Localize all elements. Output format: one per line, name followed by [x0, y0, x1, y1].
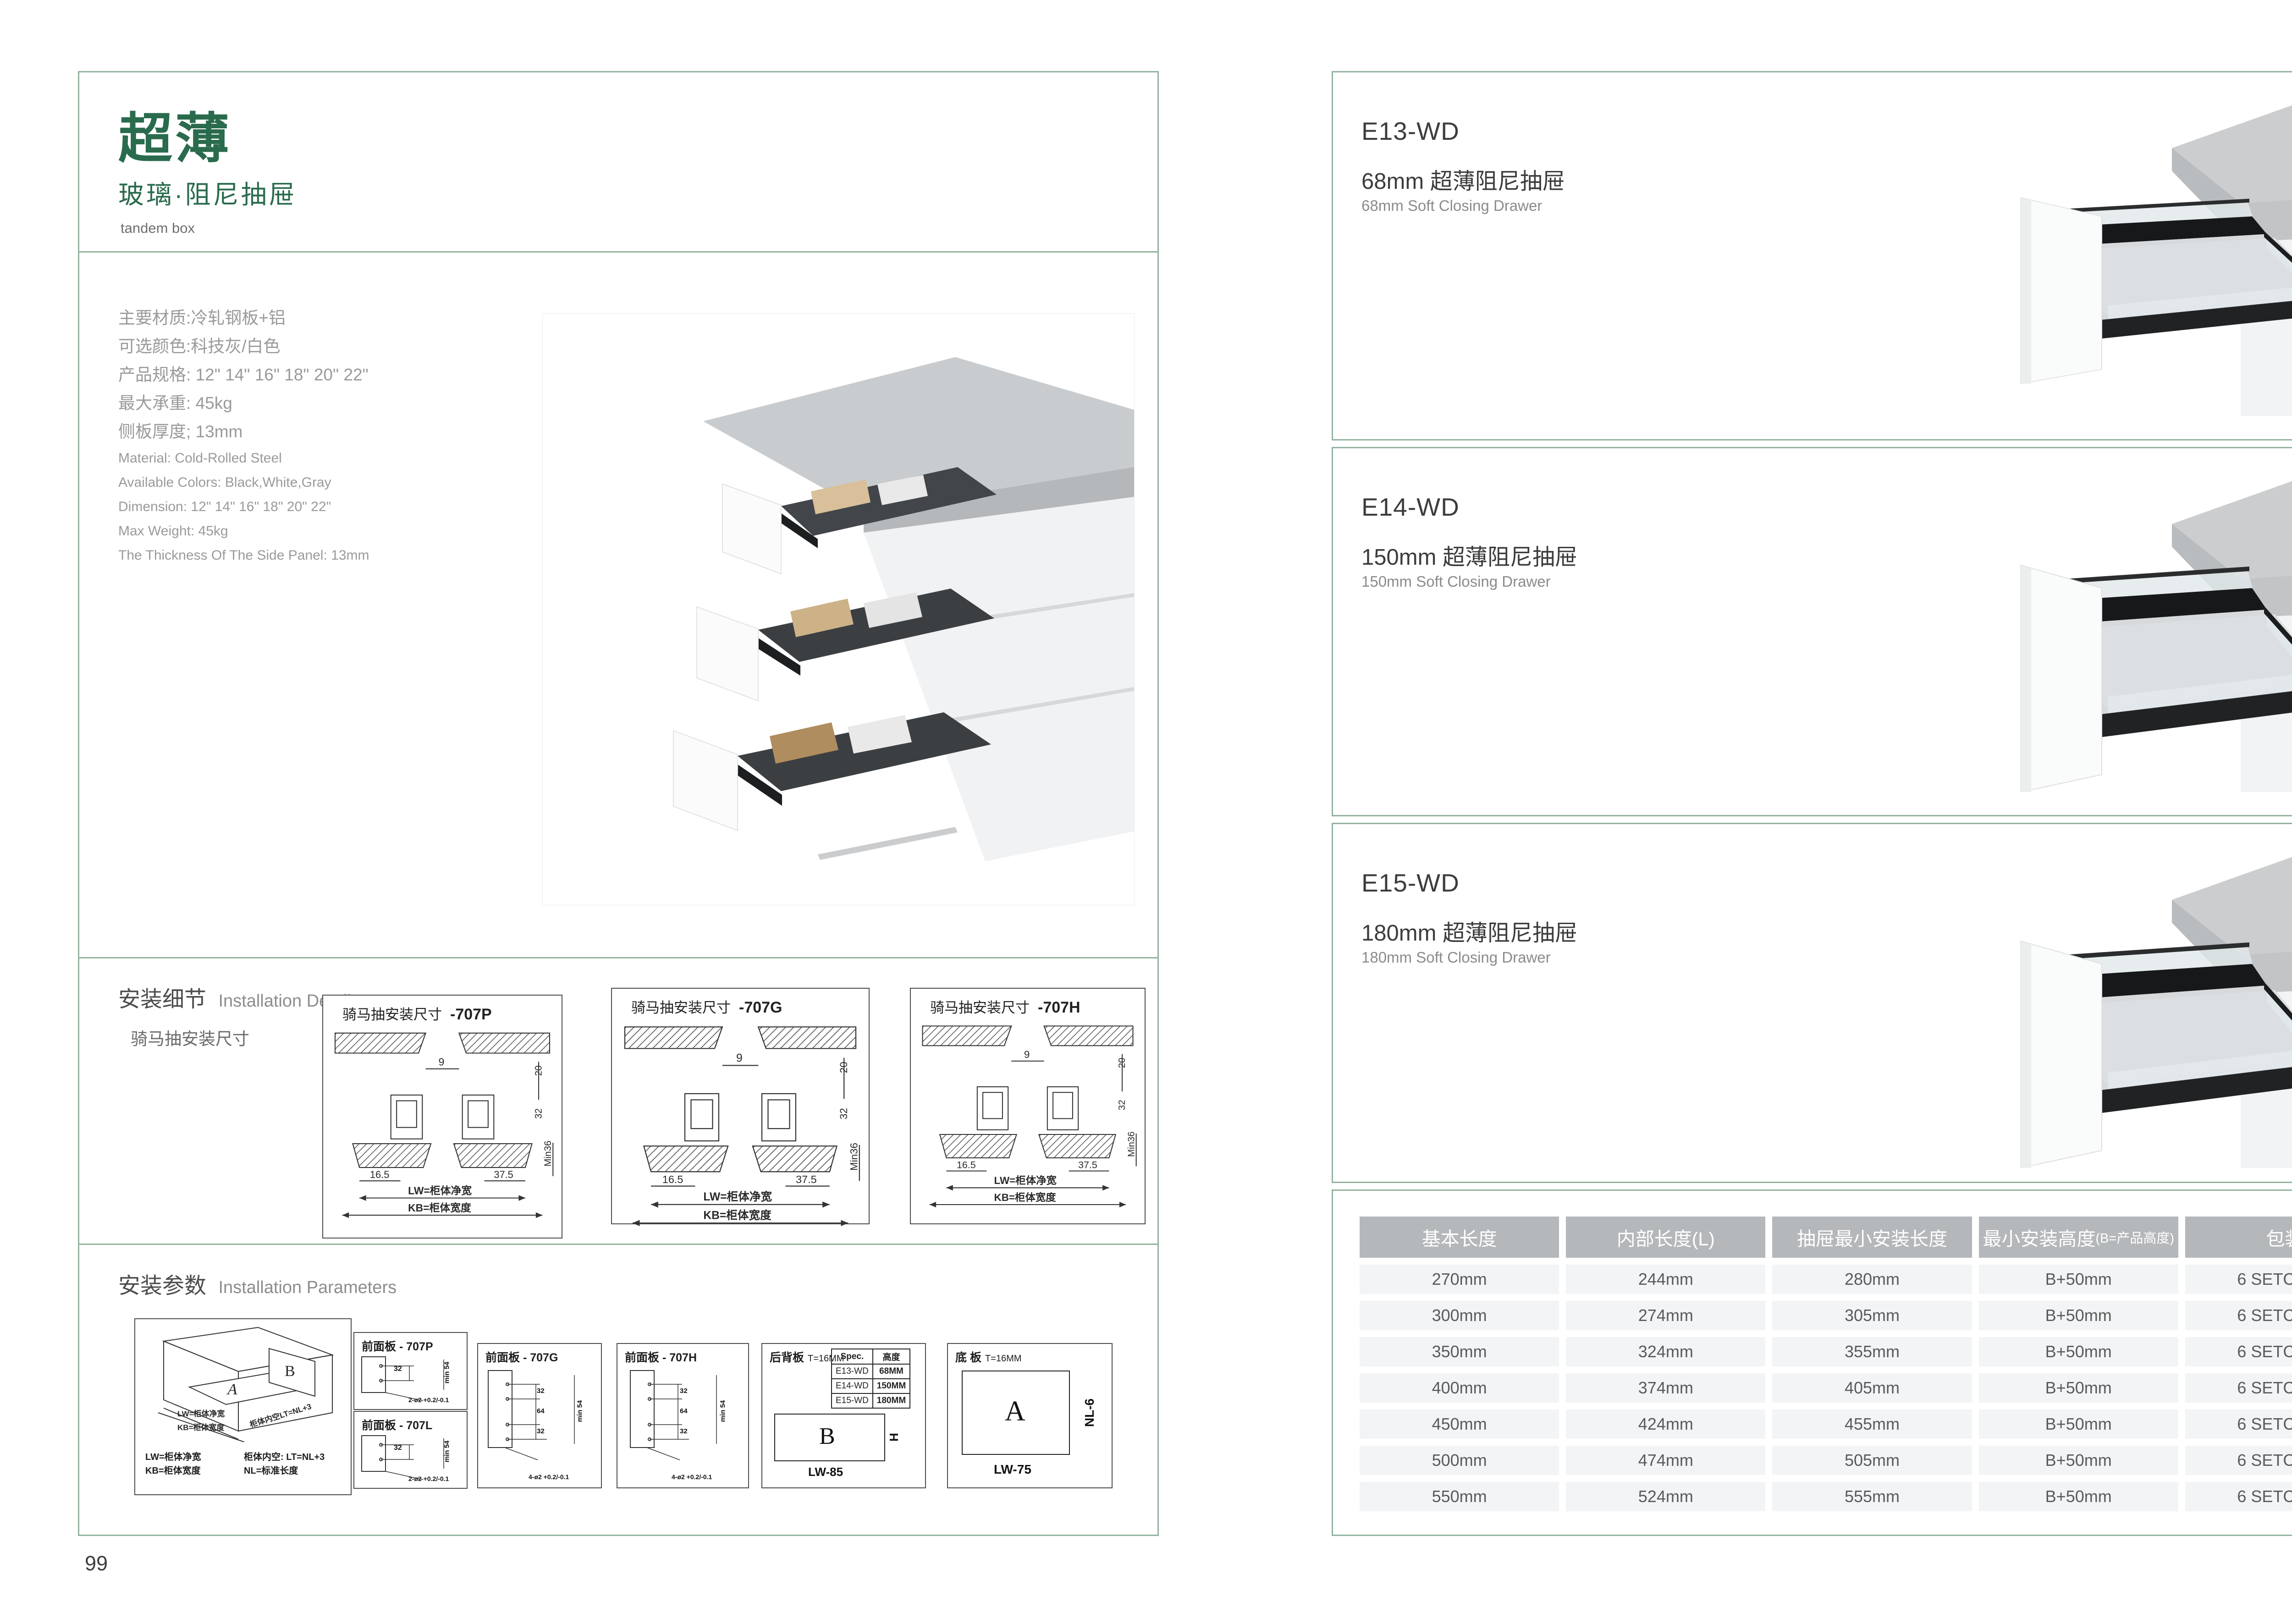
cell-min-install-length: 355mm — [1772, 1337, 1972, 1366]
product-box-e14: E14-WD 150mm 超薄阻尼抽屉 150mm Soft Closing D… — [1332, 447, 2292, 816]
spec-cell: E13-WD — [832, 1364, 873, 1379]
page-subtitle-en: tandem box — [121, 220, 195, 237]
dim-lw-75: LW-75 — [994, 1462, 1031, 1477]
cell-packing: 6 SETC/TNB — [2185, 1373, 2292, 1403]
dim-kb: KB=柜体宽度 — [994, 1191, 1057, 1203]
installation-detail-diagram: 9 20 32 Min36 16.5 37.5 LW=柜体净宽 KB=柜体宽度 — [612, 1017, 869, 1232]
table-row: 300mm274mm305mmB+50mm6 SETC/TNB — [1360, 1301, 2292, 1330]
cell-packing: 6 SETC/TNB — [2185, 1482, 2292, 1511]
spec-line-en: The Thickness Of The Side Panel: 13mm — [118, 543, 531, 567]
kb-arrow-label: KB=柜体宽度 — [177, 1423, 225, 1432]
dim-min36: Min36 — [543, 1140, 553, 1167]
cell-basic-length: 350mm — [1360, 1337, 1559, 1366]
dim-37-5: 37.5 — [1078, 1159, 1097, 1170]
front-panel-707p-box: 前面板 - 707P 32 min 54 2-ø2 +0.2/-0.1 — [353, 1332, 468, 1410]
cell-inner-length: 474mm — [1566, 1446, 1765, 1475]
spec-line-en: Max Weight: 45kg — [118, 519, 531, 543]
cell-min-install-height: B+50mm — [1979, 1482, 2178, 1511]
panel-code: - 707L — [399, 1419, 432, 1432]
front-panel-707l-box: 前面板 - 707L 32 min 54 2-ø2 +0.2/-0.1 — [353, 1411, 468, 1489]
cell-min-install-height: B+50mm — [1979, 1301, 2178, 1330]
cell-packing: 6 SETC/TNB — [2185, 1301, 2292, 1330]
cell-min-install-height: B+50mm — [1979, 1337, 2178, 1366]
dimension-table: 基本长度 内部长度(L) 抽屉最小安装长度 最小安装高度(B=产品高度) 包装 … — [1360, 1217, 2292, 1518]
panel-b-label: B — [285, 1363, 295, 1380]
col-header-min-install-length: 抽屉最小安装长度 — [1772, 1217, 1972, 1258]
main-product-photo — [542, 313, 1135, 905]
drawing-title-text: 骑马抽安装尺寸 — [930, 1000, 1030, 1016]
cell-min-install-length: 305mm — [1772, 1301, 1972, 1330]
installation-parameters-heading: 安装参数 Installation Parameters — [118, 1267, 397, 1299]
drawing-title-text: 骑马抽安装尺寸 — [631, 1000, 731, 1016]
dim-64: 64 — [680, 1407, 688, 1415]
hole-note: 4-ø2 +0.2/-0.1 — [672, 1473, 712, 1481]
panel-code: - 707P — [399, 1340, 433, 1353]
panel-title-text: 后背板 — [770, 1351, 804, 1364]
cell-min-install-height: B+50mm — [1979, 1446, 2178, 1475]
panel-b-letter: B — [819, 1423, 835, 1450]
cell-min-install-length: 280mm — [1772, 1265, 1972, 1294]
cell-min-install-length: 455mm — [1772, 1409, 1972, 1439]
legend-kb: KB=柜体宽度 — [145, 1464, 244, 1478]
height-spec-table: Spec.高度 E13-WD68MM E14-WD150MM E15-WD180… — [831, 1349, 910, 1409]
col-header-inner-length: 内部长度(L) — [1566, 1217, 1765, 1258]
table-row: 450mm424mm455mmB+50mm6 SETC/TNB — [1360, 1409, 2292, 1439]
dim-min54: min 54 — [443, 1362, 451, 1384]
product-name-en: 68mm Soft Closing Drawer — [1361, 197, 1542, 215]
heading-cn: 安装参数 — [118, 1274, 206, 1298]
dim-16-5: 16.5 — [662, 1173, 683, 1185]
heading-cn: 安装细节 — [118, 987, 206, 1012]
lt-arrow-label: 柜体内空LT=NL+3 — [248, 1402, 312, 1429]
lw-arrow-label: LW=柜体净宽 — [177, 1409, 225, 1418]
product-photo — [1904, 847, 2292, 1168]
legend-lw: LW=柜体净宽 — [145, 1450, 244, 1464]
dim-lw-85: LW-85 — [808, 1465, 843, 1479]
dim-64: 64 — [537, 1407, 545, 1415]
dimension-table-box: 基本长度 内部长度(L) 抽屉最小安装长度 最小安装高度(B=产品高度) 包装 … — [1332, 1189, 2292, 1536]
panel-title: 前面板 - 707H — [625, 1349, 697, 1365]
detail-drawing-707g: 骑马抽安装尺寸-707G 9 20 32 Min36 16.5 37.5 LW=… — [611, 988, 870, 1224]
table-row: 500mm474mm505mmB+50mm6 SETC/TNB — [1360, 1446, 2292, 1475]
dim-32: 32 — [537, 1427, 545, 1435]
panel-title-text: 前面板 — [485, 1351, 520, 1364]
page-title: 超薄 — [118, 94, 232, 173]
spec-block: 主要材质:冷轧钢板+铝 可选颜色:科技灰/白色 产品规格: 12" 14" 16… — [118, 304, 531, 567]
panel-title: 底 板T=16MM — [955, 1349, 1021, 1365]
col-header-min-install-height: 最小安装高度(B=产品高度) — [1979, 1217, 2178, 1258]
cell-basic-length: 300mm — [1360, 1301, 1559, 1330]
spec-line-en: Material: Cold-Rolled Steel — [118, 446, 531, 470]
product-model: E15-WD — [1361, 868, 1460, 897]
dim-min54: min 54 — [443, 1441, 451, 1463]
cell-min-install-length: 555mm — [1772, 1482, 1972, 1511]
back-panel-box: 后背板T=16MM Spec.高度 E13-WD68MM E14-WD150MM… — [761, 1343, 926, 1488]
catalog-spread: 超薄 玻璃·阻尼抽屉 tandem box 主要材质:冷轧钢板+铝 可选颜色:科… — [0, 0, 2292, 1624]
product-name-en: 180mm Soft Closing Drawer — [1361, 949, 1551, 966]
cell-inner-length: 374mm — [1566, 1373, 1765, 1403]
cabinet-3d: A B LW=柜体净宽 KB=柜体宽度 柜体内空LT=NL+3 — [135, 1322, 351, 1442]
product-box-e13: E13-WD 68mm 超薄阻尼抽屉 68mm Soft Closing Dra… — [1332, 71, 2292, 440]
cell-packing: 6 SETC/TNB — [2185, 1265, 2292, 1294]
spec-line-cn: 产品规格: 12" 14" 16" 18" 20" 22" — [118, 361, 531, 389]
page-subtitle: 玻璃·阻尼抽屉 — [118, 174, 297, 211]
dim-min36: Min36 — [848, 1143, 859, 1171]
divider — [79, 957, 1157, 958]
cell-basic-length: 450mm — [1360, 1409, 1559, 1439]
dim-32: 32 — [537, 1387, 545, 1395]
back-panel-outline: B — [774, 1414, 885, 1461]
product-name-cn: 150mm 超薄阻尼抽屉 — [1361, 539, 1577, 572]
cell-basic-length: 500mm — [1360, 1446, 1559, 1475]
dim-16-5: 16.5 — [957, 1159, 976, 1170]
panel-title: 前面板 - 707L — [362, 1416, 432, 1433]
panel-title: 前面板 - 707G — [485, 1349, 558, 1365]
product-photo — [1904, 95, 2292, 416]
table-row: 350mm324mm355mmB+50mm6 SETC/TNB — [1360, 1337, 2292, 1366]
dim-32: 32 — [394, 1444, 402, 1452]
spec-line-cn: 主要材质:冷轧钢板+铝 — [118, 304, 531, 332]
front-panel-707g-box: 前面板 - 707G 32 64 32 min 54 4-ø2 +0.2/-0.… — [477, 1343, 602, 1488]
bottom-panel-box: 底 板T=16MM A NL-6 LW-75 — [947, 1343, 1113, 1488]
cell-min-install-height: B+50mm — [1979, 1265, 2178, 1294]
dim-20: 20 — [533, 1065, 544, 1076]
table-row: 400mm374mm405mmB+50mm6 SETC/TNB — [1360, 1373, 2292, 1403]
drawer-product-photo — [1904, 95, 2292, 416]
dim-9: 9 — [1024, 1049, 1030, 1060]
table-body: 270mm244mm280mmB+50mm6 SETC/TNB 300mm274… — [1360, 1265, 2292, 1511]
panel-code: - 707G — [523, 1351, 558, 1364]
heading-en: Installation Parameters — [218, 1278, 397, 1297]
cabinet-dimensions-box: A B LW=柜体净宽 KB=柜体宽度 柜体内空LT=NL+3 LW=柜体净宽柜… — [134, 1318, 352, 1495]
cell-inner-length: 274mm — [1566, 1301, 1765, 1330]
table-row: 550mm524mm555mmB+50mm6 SETC/TNB — [1360, 1482, 2292, 1511]
panel-title: 前面板 - 707P — [362, 1338, 433, 1354]
cell-min-install-length: 405mm — [1772, 1373, 1972, 1403]
cabinet-legend: LW=柜体净宽柜体内空: LT=NL+3 KB=柜体宽度NL=标准长度 — [145, 1450, 342, 1478]
front-panel-707h-box: 前面板 - 707H 32 64 32 min 54 4-ø2 +0.2/-0.… — [617, 1343, 749, 1488]
header-main: 最小安装高度 — [1983, 1223, 2095, 1251]
dim-min54: min 54 — [576, 1400, 584, 1422]
details-caption: 骑马抽安装尺寸 — [131, 1025, 249, 1050]
hole-note: 2-ø2 +0.2/-0.1 — [408, 1396, 449, 1404]
dim-37-5: 37.5 — [796, 1173, 817, 1185]
panel-code: - 707H — [662, 1351, 697, 1364]
drawer-product-photo — [1904, 471, 2292, 792]
dim-32: 32 — [533, 1108, 544, 1119]
dim-lw: LW=柜体净宽 — [703, 1190, 772, 1203]
divider — [79, 1244, 1157, 1245]
spec-cell: 68MM — [873, 1364, 910, 1379]
cell-packing: 6 SETC/TNB — [2185, 1409, 2292, 1439]
spec-line-cn: 最大承重: 45kg — [118, 389, 531, 418]
spec-line-cn: 侧板厚度; 13mm — [118, 418, 531, 446]
cell-inner-length: 244mm — [1566, 1265, 1765, 1294]
cell-packing: 6 SETC/TNB — [2185, 1337, 2292, 1366]
product-name-en: 150mm Soft Closing Drawer — [1361, 573, 1551, 590]
cabinet-3d-diagram: A B LW=柜体净宽 KB=柜体宽度 柜体内空LT=NL+3 — [135, 1322, 351, 1442]
legend-lt: 柜体内空: LT=NL+3 — [244, 1450, 342, 1464]
dim-32: 32 — [680, 1387, 688, 1395]
dim-37-5: 37.5 — [494, 1169, 513, 1180]
installation-detail-diagram: 9 20 32 Min36 16.5 37.5 LW=柜体净宽 KB=柜体宽度 — [323, 1024, 562, 1224]
panel-a-letter: A — [1005, 1395, 1025, 1428]
bottom-panel-outline: A — [962, 1371, 1070, 1455]
dim-kb: KB=柜体宽度 — [408, 1202, 471, 1214]
dim-nl-6: NL-6 — [1082, 1398, 1097, 1427]
hole-note: 2-ø2 +0.2/-0.1 — [408, 1475, 449, 1482]
detail-drawing-707p: 骑马抽安装尺寸-707P 9 20 32 Min36 16.5 37.5 LW=… — [322, 995, 562, 1239]
spec-cell: E14-WD — [832, 1379, 873, 1393]
drawing-title: 骑马抽安装尺寸-707P — [323, 996, 562, 1024]
drawing-title: 骑马抽安装尺寸-707H — [911, 989, 1145, 1017]
detail-drawing-707h: 骑马抽安装尺寸-707H 9 20 32 Min36 16.5 37.5 LW=… — [910, 988, 1146, 1224]
dim-h: H — [887, 1433, 901, 1442]
drawing-code: -707G — [739, 999, 782, 1016]
cell-basic-length: 400mm — [1360, 1373, 1559, 1403]
dim-32: 32 — [1117, 1100, 1127, 1110]
divider — [79, 251, 1157, 253]
spec-cell: 180MM — [873, 1393, 910, 1408]
table-row: 270mm244mm280mmB+50mm6 SETC/TNB — [1360, 1265, 2292, 1294]
table-header-row: 基本长度 内部长度(L) 抽屉最小安装长度 最小安装高度(B=产品高度) 包装 — [1360, 1217, 2292, 1258]
product-name-cn: 180mm 超薄阻尼抽屉 — [1361, 915, 1577, 947]
dim-lw: LW=柜体净宽 — [994, 1174, 1057, 1186]
panel-title-text: 底 板 — [955, 1351, 981, 1364]
dim-min54: min 54 — [719, 1400, 727, 1422]
col-header-basic-length: 基本长度 — [1360, 1217, 1559, 1258]
product-photo — [1904, 471, 2292, 792]
panel-thickness: T=16MM — [985, 1354, 1021, 1364]
dim-kb: KB=柜体宽度 — [703, 1208, 771, 1222]
drawers-product-photo — [543, 314, 1134, 905]
cell-min-install-height: B+50mm — [1979, 1409, 2178, 1439]
header-note: (B=产品高度) — [2095, 1228, 2174, 1247]
product-model: E14-WD — [1361, 492, 1460, 522]
cell-min-install-height: B+50mm — [1979, 1373, 2178, 1403]
spec-line-cn: 可选颜色:科技灰/白色 — [118, 332, 531, 361]
dim-20: 20 — [838, 1062, 849, 1073]
panel-title-text: 前面板 — [625, 1351, 659, 1364]
cell-inner-length: 524mm — [1566, 1482, 1765, 1511]
product-box-e15: E15-WD 180mm 超薄阻尼抽屉 180mm Soft Closing D… — [1332, 823, 2292, 1183]
spec-cell: E15-WD — [832, 1393, 873, 1408]
drawing-title-text: 骑马抽安装尺寸 — [342, 1007, 442, 1023]
dim-lw: LW=柜体净宽 — [408, 1184, 472, 1196]
cell-inner-length: 424mm — [1566, 1409, 1765, 1439]
col-header-packing: 包装 — [2185, 1217, 2292, 1258]
legend-nl: NL=标准长度 — [244, 1464, 342, 1478]
panel-title-text: 前面板 — [362, 1419, 396, 1432]
spec-line-en: Dimension: 12" 14" 16" 18" 20" 22" — [118, 495, 531, 519]
cell-basic-length: 550mm — [1360, 1482, 1559, 1511]
cell-basic-length: 270mm — [1360, 1265, 1559, 1294]
left-page: 超薄 玻璃·阻尼抽屉 tandem box 主要材质:冷轧钢板+铝 可选颜色:科… — [78, 71, 1159, 1536]
dim-32: 32 — [680, 1427, 688, 1435]
dim-16-5: 16.5 — [370, 1169, 389, 1180]
drawing-code: -707P — [450, 1006, 492, 1023]
spec-line-en: Available Colors: Black,White,Gray — [118, 470, 531, 495]
spec-col-header: 高度 — [873, 1349, 910, 1364]
spec-cell: 150MM — [873, 1379, 910, 1393]
cell-packing: 6 SETC/TNB — [2185, 1446, 2292, 1475]
product-model: E13-WD — [1361, 116, 1460, 146]
hole-note: 4-ø2 +0.2/-0.1 — [529, 1473, 569, 1481]
page-number-left: 99 — [85, 1552, 108, 1575]
product-name-cn: 68mm 超薄阻尼抽屉 — [1361, 163, 1565, 196]
dim-9: 9 — [736, 1052, 743, 1065]
dim-min36: Min36 — [1127, 1131, 1137, 1156]
installation-detail-diagram: 9 20 32 Min36 16.5 37.5 LW=柜体净宽 KB=柜体宽度 — [911, 1017, 1145, 1213]
cell-inner-length: 324mm — [1566, 1337, 1765, 1366]
dim-20: 20 — [1117, 1058, 1127, 1068]
dim-32: 32 — [838, 1108, 849, 1119]
dim-32: 32 — [394, 1365, 402, 1373]
panel-title-text: 前面板 — [362, 1340, 396, 1353]
cell-min-install-length: 505mm — [1772, 1446, 1972, 1475]
drawing-code: -707H — [1038, 999, 1080, 1016]
drawer-product-photo — [1904, 847, 2292, 1168]
spec-col-header: Spec. — [832, 1349, 873, 1364]
dim-9: 9 — [439, 1056, 445, 1068]
drawing-title: 骑马抽安装尺寸-707G — [612, 989, 869, 1017]
